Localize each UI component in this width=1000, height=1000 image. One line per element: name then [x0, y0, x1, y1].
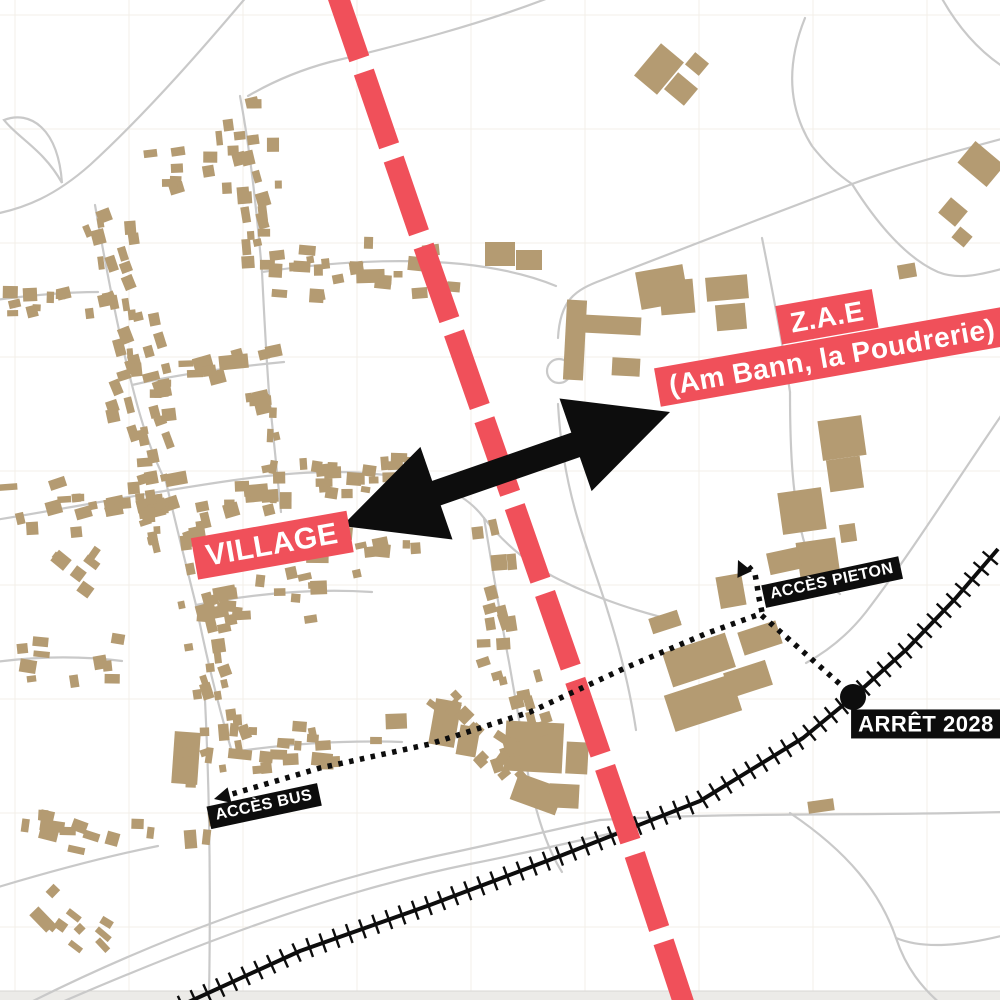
- map-canvas: VILLAGE Z.A.E (Am Bann, la Poudrerie) AC…: [0, 0, 1000, 1000]
- station-2028-label: ARRÊT 2028: [851, 709, 1000, 738]
- station-2028-dot: [840, 684, 866, 710]
- base-map: [0, 0, 1000, 1000]
